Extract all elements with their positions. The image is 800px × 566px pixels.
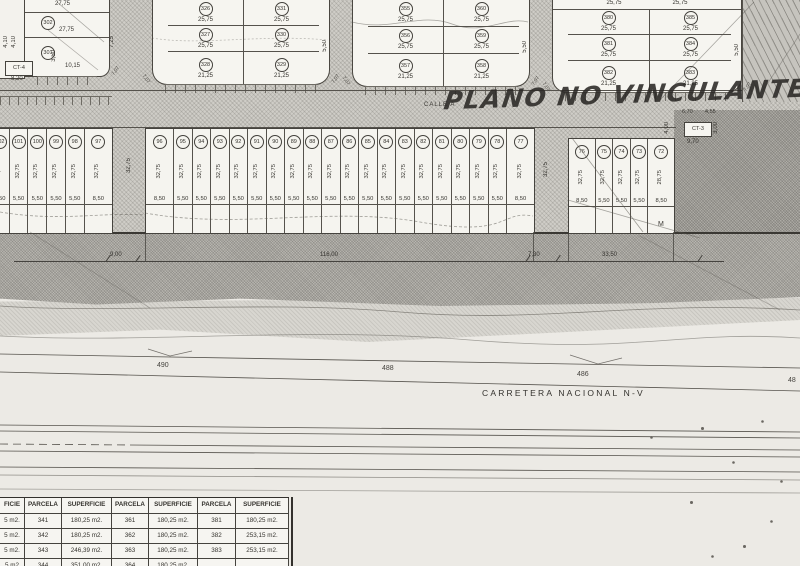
parcel-number: 83 [398,135,412,149]
parcel-depth: 32,75 [66,149,84,194]
parcel-cell: 381 25,75 [568,35,649,61]
table-body: 5 m2. 341 180,25 m2. 361 180,25 m2. 381 … [0,514,289,566]
block-columns: 355 25,75 356 25,75 357 21,25 360 25,75 … [368,0,519,86]
parcel: 93 32,75 5,50 [211,129,230,233]
dim-label: 4,00 [664,122,670,134]
parcel-width-dim: 5,50 [341,194,359,204]
table-header-label: SUPERFICIE [243,502,281,508]
parcel-dim: 25,75 [198,17,213,23]
parcel-width-dim: 5,50 [452,194,470,204]
table-header-row: FICIEPARCELASUPERFICIEPARCELASUPERFICIEP… [0,498,289,514]
parcel: 100 32,75 5,50 [28,129,47,233]
parcel-cell: 329 21,25 [244,52,319,84]
parcela-cell: 364 [112,559,149,566]
parcel-setback-cell [285,204,303,233]
parcel-depth: 32,75 [341,149,359,194]
parcel: 98 32,75 5,50 [66,129,85,233]
parcel-number: 357 [399,59,413,73]
parcel-number: 92 [231,135,245,149]
sidewalk-ticks [0,96,112,105]
parcel-depth-dim: 32,75 [254,164,260,179]
parcel-block-a: 27,75 302 27,75 301 3,50 10,15 7,07 [24,0,110,77]
parcel-number: 88 [305,135,319,149]
dim-label: 3,50 [51,50,57,62]
parcel-number: 84 [379,135,393,149]
table-header-label: PARCELA [115,502,145,508]
parcel: 73 32,75 5,50 [631,139,649,233]
superficie-cell: 180,25 m2. [149,529,198,544]
parcel-number: 102 [0,135,7,149]
parcel-depth-dim: 32,75 [309,164,315,179]
dim-label: 4,10 [11,36,17,48]
parcel-depth: 32,75 [489,149,507,194]
parcel-cell: 385 25,75 [650,9,731,35]
parcel: 87 32,75 5,50 [322,129,341,233]
table-row: 5 m2. 341 180,25 m2. 361 180,25 m2. 381 … [0,514,289,529]
parcel-setback-cell [415,204,433,233]
table-row: 5 m2 344 351,00 m2. 364 180,25 m2. [0,559,289,566]
parcel-setback-cell [0,204,9,233]
parcel: 90 32,75 5,50 [267,129,286,233]
parcel-number: 327 [199,28,213,42]
parcel-width-dim: 5,50 [596,196,613,206]
site-plan-scan: 4,10 4,10 27,75 302 27,75 301 3,50 10,15… [0,0,800,566]
dim-guide-line [568,232,569,262]
parcel-setback-cell [85,204,112,233]
parcel-number: 95 [176,135,190,149]
dim-label: 5,50 [734,44,740,56]
superficie-cell: 253,15 m2. [236,544,289,559]
parcel-cell: 380 25,75 [568,9,649,35]
parcel-width-dim: 5,50 [396,194,414,204]
parcel-cell: 384 25,75 [650,35,731,61]
block-left-dims [554,2,565,87]
parcela-cell [198,559,236,566]
parcel-setback-cell [28,204,46,233]
parcel-depth-dim: 32,75 [0,164,3,179]
parcel-number: 85 [361,135,375,149]
dim-guide-line [673,232,674,262]
parcel-depth-dim: 32,75 [272,164,278,179]
parcel-number: 359 [475,29,489,43]
road-dim-label: 9,00 [110,252,122,258]
dim-label: 6,70 [682,110,693,116]
parcel-width-dim: 8,50 [146,194,173,204]
parcel-depth: 32,75 [248,149,266,194]
parcel-width-dim: 5,50 [631,196,648,206]
parcel-depth-dim: 32,75 [579,170,585,185]
parcel-setback-cell [193,204,211,233]
parcel-depth: 32,75 [433,149,451,194]
superficie-cell: 180,25 m2. [149,559,198,566]
parcel-setback-cell [433,204,451,233]
parcel: 76 32,75 8,50 [569,139,596,233]
parcel-depth-dim: 32,75 [420,164,426,179]
parcel-width-dim: 8,50 [569,196,595,206]
m-label: M [658,221,664,228]
table-row: 5 m2. 343 246,39 m2. 363 180,25 m2. 383 … [0,544,289,559]
parcel-number: 98 [68,135,82,149]
parcel-depth-dim: 32,75 [53,164,59,179]
parcel-depth-dim: 32,75 [157,164,163,179]
parcel-dim: 25,75 [274,43,289,49]
parcel-number: 72 [654,145,668,159]
superficie-cell [236,559,289,566]
road-dim-label: 7,30 [528,252,540,258]
parcela-cell: 362 [112,529,149,544]
table-header-cell: FICIE [0,498,25,514]
parcel-depth-dim: 32,75 [180,164,186,179]
parcel-setback-cell [470,204,488,233]
parcel: 91 32,75 5,50 [248,129,267,233]
contour-label: 486 [577,371,589,378]
parcel-width-dim: 5,50 [433,194,451,204]
parcel-width-dim: 5,50 [248,194,266,204]
parcel-depth-dim: 32,75 [72,164,78,179]
dim-label: 5,50 [522,41,528,53]
street-depth-dim: 32,75 [543,162,549,177]
parcela-cell: 342 [25,529,62,544]
parcel-width-dim: 8,50 [648,196,674,206]
parcel-depth: 32,75 [569,159,595,196]
parcel-number: 76 [575,145,589,159]
block-column: 360 25,75 359 25,75 358 21,25 [443,0,519,86]
table-header-cell: SUPERFICIE [62,498,112,514]
parcel-depth-dim: 32,75 [518,164,524,179]
table-header-label: FICIE [4,502,20,508]
parcel-cell: 360 25,75 [444,0,519,27]
parcel-width-dim: 5,50 [47,194,65,204]
parcel-depth-dim: 32,75 [383,164,389,179]
block-column: 326 25,75 327 25,75 328 21,25 [168,0,243,84]
dimension-line [14,261,724,262]
parcel: 94 32,75 5,50 [193,129,212,233]
parcel-depth: 32,75 [28,149,46,194]
parcel-number: 355 [399,2,413,16]
parcel-cell: 355 25,75 [368,0,443,27]
parcel-number: 358 [475,59,489,73]
table-header-label: SUPERFICIE [68,502,106,508]
parcel-depth: 32,75 [470,149,488,194]
parcel-dim: 25,75 [474,17,489,23]
parcel: 89 32,75 5,50 [285,129,304,233]
parcel-number: 356 [399,29,413,43]
parcel-number: 87 [324,135,338,149]
parcel-setback-cell [631,206,648,233]
parcel-width-dim: 5,50 [66,194,84,204]
road-name-label: CARRETERA NACIONAL N-V [482,388,645,398]
parcel: 88 32,75 5,50 [304,129,323,233]
superficie-cut-cell: 5 m2. [0,544,25,559]
parcel-depth: 32,75 [47,149,65,194]
parcel-depth-dim: 32,75 [457,164,463,179]
parcel: 75 32,75 5,50 [596,139,614,233]
parcel-number: 79 [472,135,486,149]
dim-label: 5,50 [322,40,328,52]
parcel-depth: 32,75 [0,149,9,194]
parcel-width-dim: 5,50 [10,194,28,204]
parcel-number: 385 [684,11,698,25]
table-header-label: SUPERFICIE [154,502,192,508]
parcel-depth-dim: 32,75 [619,170,625,185]
parcel-setback-cell [304,204,322,233]
parcela-cell: 341 [25,514,62,529]
parcel-dim: 25,75 [398,17,413,23]
table-header-cell: PARCELA [25,498,62,514]
superficie-cut-cell: 5 m2 [0,559,25,566]
parcel: 78 32,75 5,50 [489,129,508,233]
dim-label: 4,10 [3,36,9,48]
road-dim-label: 33,50 [602,252,617,258]
superficie-cut-cell: 5 m2. [0,514,25,529]
parcel-number: 74 [614,145,628,159]
superficie-cell: 351,00 m2. [62,559,112,566]
parcel-block-c: 355 25,75 356 25,75 357 21,25 360 25,75 … [352,0,530,87]
parcel-cell: 357 21,25 [368,54,443,86]
main-street-band [0,232,800,306]
superficie-cell: 180,25 m2. [62,514,112,529]
parcel-depth-dim: 32,75 [291,164,297,179]
parcel-setback-cell [211,204,229,233]
parcel: 80 32,75 5,50 [452,129,471,233]
parcel-dim: 25,75 [601,52,616,58]
parcela-cell: 383 [198,544,236,559]
parcel: 92 32,75 5,50 [230,129,249,233]
parcel-depth: 32,75 [507,149,534,194]
contour-label: 488 [382,365,394,372]
parcel-width-dim: 5,50 [174,194,192,204]
scan-specks [0,0,1,1]
parcel-dim: 25,75 [198,43,213,49]
parcel-area-table: FICIEPARCELASUPERFICIEPARCELASUPERFICIEP… [0,497,289,566]
block-left-dims [154,2,165,79]
parcel-number: 96 [153,135,167,149]
parcel-group-center: 96 32,75 8,50 95 32,75 5,50 94 32,75 5,5… [145,128,535,234]
parcel: 96 32,75 8,50 [146,129,174,233]
parcel-setback-cell [230,204,248,233]
parcel-number: 93 [213,135,227,149]
parcel-depth-dim: 32,75 [198,164,204,179]
parcel-width-dim: 5,50 [489,194,507,204]
parcel-dim: 25,75 [398,44,413,50]
parcel-width-dim: 5,50 [613,196,630,206]
parcel-depth: 32,75 [267,149,285,194]
parcel-setback-cell [613,206,630,233]
parcel: 102 32,75 5,50 [0,129,10,233]
parcel-width-dim: 5,50 [304,194,322,204]
parcel-setback-cell [322,204,340,233]
parcel-cell: 330 25,75 [244,26,319,52]
parcel-number: 82 [416,135,430,149]
parcel-width-dim: 5,50 [322,194,340,204]
parcel-width-dim: 5,50 [230,194,248,204]
parcel-number: 73 [632,145,646,159]
parcel-block-b: 326 25,75 327 25,75 328 21,25 331 25,75 … [152,0,330,85]
contour-label: 490 [157,362,169,369]
parcel-depth: 32,75 [415,149,433,194]
parcel-cell: 328 21,25 [168,52,243,84]
parcel-depth: 32,75 [396,149,414,194]
contour-label: 48 [788,377,796,384]
block-columns: 326 25,75 327 25,75 328 21,25 331 25,75 … [168,0,319,84]
parcel-setback-cell [489,204,507,233]
parcel-depth-dim: 32,75 [365,164,371,179]
table-header-cell: SUPERFICIE [236,498,289,514]
parcela-cell: 363 [112,544,149,559]
parcel-depth-dim: 32,75 [217,164,223,179]
parcel-depth: 32,75 [378,149,396,194]
parcel-group-left: 102 32,75 5,50 101 32,75 5,50 100 32,75 … [0,128,113,234]
road-dim-label: 116,00 [320,252,338,258]
parcel-number: 97 [91,135,105,149]
dim-label: 10,15 [65,63,80,69]
dim-label: 25,75 [606,0,621,6]
parcel-cell: 331 25,75 [244,0,319,26]
block-column: 331 25,75 330 25,75 329 21,25 [243,0,319,84]
parcel-width-dim: 5,50 [359,194,377,204]
parcel-depth-dim: 32,75 [34,164,40,179]
parcel-depth: 32,75 [359,149,377,194]
parcel-setback-cell [267,204,285,233]
parcel-number: 380 [602,11,616,25]
parcela-cell: 382 [198,529,236,544]
parcel-width-dim: 8,50 [507,194,534,204]
parcel-dim: 25,75 [683,52,698,58]
parcel-number: 384 [684,37,698,51]
dim-label: 3,00 [713,122,719,134]
parcel-number: 331 [275,2,289,16]
superficie-cell: 180,25 m2. [149,544,198,559]
parcel: 81 32,75 5,50 [433,129,452,233]
parcel-depth: 32,75 [613,159,630,196]
transformer-box-ct3: CT-3 [684,122,712,137]
dim-guide-line [145,232,146,262]
parcel-depth: 32,75 [193,149,211,194]
parcel-setback-cell [596,206,613,233]
parcel-depth: 28,75 [648,159,674,196]
parcel-dim: 25,75 [601,26,616,32]
parcel-width-dim: 5,50 [28,194,46,204]
parcel-number: 326 [199,2,213,16]
table-header-label: PARCELA [28,502,58,508]
superficie-cell: 180,25 m2. [62,529,112,544]
dim-label: 8,20 [11,76,23,82]
table-header-cell: PARCELA [112,498,149,514]
parcel-width-dim: 5,50 [285,194,303,204]
superficie-cell: 180,25 m2. [236,514,289,529]
parcel-number: 80 [453,135,467,149]
parcel-dim: 21,25 [474,74,489,80]
parcel-setback-cell [569,206,595,233]
parcel-depth: 32,75 [596,159,613,196]
parcel-depth-dim: 32,75 [476,164,482,179]
parcela-cell: 361 [112,514,149,529]
parcel-setback-cell [359,204,377,233]
parcel-number: 94 [194,135,208,149]
parcel-depth-dim: 32,75 [402,164,408,179]
parcel-number: 81 [435,135,449,149]
parcel-number: 75 [597,145,611,159]
table-header-cell: PARCELA [198,498,236,514]
transformer-box-ct4: CT-4 [5,61,33,76]
parcel-width-dim: 8,50 [85,194,112,204]
parcel-depth: 32,75 [146,149,173,194]
parcel-number: 86 [342,135,356,149]
parcel-depth-dim: 32,75 [601,170,607,185]
superficie-cell: 246,39 m2. [62,544,112,559]
parcel-depth: 32,75 [631,159,648,196]
parcel-setback-cell [47,204,65,233]
parcel-dim: 21,25 [198,73,213,79]
parcel-group-right: 76 32,75 8,50 75 32,75 5,50 74 32,75 5,5… [568,138,675,234]
parcel-cell: 358 21,25 [444,54,519,86]
parcel-depth: 32,75 [211,149,229,194]
parcel: 101 32,75 5,50 [10,129,29,233]
parcel-setback-cell [66,204,84,233]
parcel-depth-dim: 32,75 [346,164,352,179]
parcel-divider-line [25,37,109,38]
parcela-cell: 343 [25,544,62,559]
parcel: 83 32,75 5,50 [396,129,415,233]
parcel-depth-dim: 32,75 [439,164,445,179]
dim-label: 9,70 [687,139,699,145]
parcel: 77 32,75 8,50 [507,129,534,233]
parcel-depth-dim: 32,75 [328,164,334,179]
superficie-cell: 253,15 m2. [236,529,289,544]
parcel-depth: 32,75 [230,149,248,194]
parcel-cell: 327 25,75 [168,26,243,52]
block-left-dims [354,2,365,81]
parcel-number: 329 [275,58,289,72]
superficie-cell: 180,25 m2. [149,514,198,529]
parcel-depth: 32,75 [452,149,470,194]
dim-label: 27,75 [55,1,70,7]
parcel: 97 32,75 8,50 [85,129,112,233]
parcel: 84 32,75 5,50 [378,129,397,233]
parcel-setback-cell [378,204,396,233]
parcel-width-dim: 5,50 [378,194,396,204]
dim-label: 27,75 [59,27,74,33]
parcel-setback-cell [10,204,28,233]
table-row: 5 m2. 342 180,25 m2. 362 180,25 m2. 382 … [0,529,289,544]
parcel-number: 77 [514,135,528,149]
parcel: 99 32,75 5,50 [47,129,66,233]
parcel: 79 32,75 5,50 [470,129,489,233]
street-depth-dim: 32,75 [126,158,132,173]
parcel-number: 99 [49,135,63,149]
parcel-depth: 32,75 [304,149,322,194]
parcel-depth-dim: 32,75 [16,164,22,179]
parcel-setback-cell [452,204,470,233]
dim-label: 7,25 [109,36,115,48]
parcel-setback-cell [507,204,534,233]
parcel-cell: 356 25,75 [368,27,443,54]
dim-label: 4,55 [705,110,716,116]
parcela-cell: 381 [198,514,236,529]
parcel: 74 32,75 5,50 [613,139,631,233]
parcel: 95 32,75 5,50 [174,129,193,233]
parcel-width-dim: 5,50 [211,194,229,204]
parcel-depth-dim: 32,75 [494,164,500,179]
parcel-dim: 25,75 [274,17,289,23]
parcel-setback-cell [341,204,359,233]
parcel-number: 382 [602,66,616,80]
parcel-depth-dim: 32,75 [636,170,642,185]
parcel-number: 89 [287,135,301,149]
parcel-setback-cell [174,204,192,233]
parcel-dim: 21,25 [274,73,289,79]
parcel-width-dim: 5,50 [193,194,211,204]
